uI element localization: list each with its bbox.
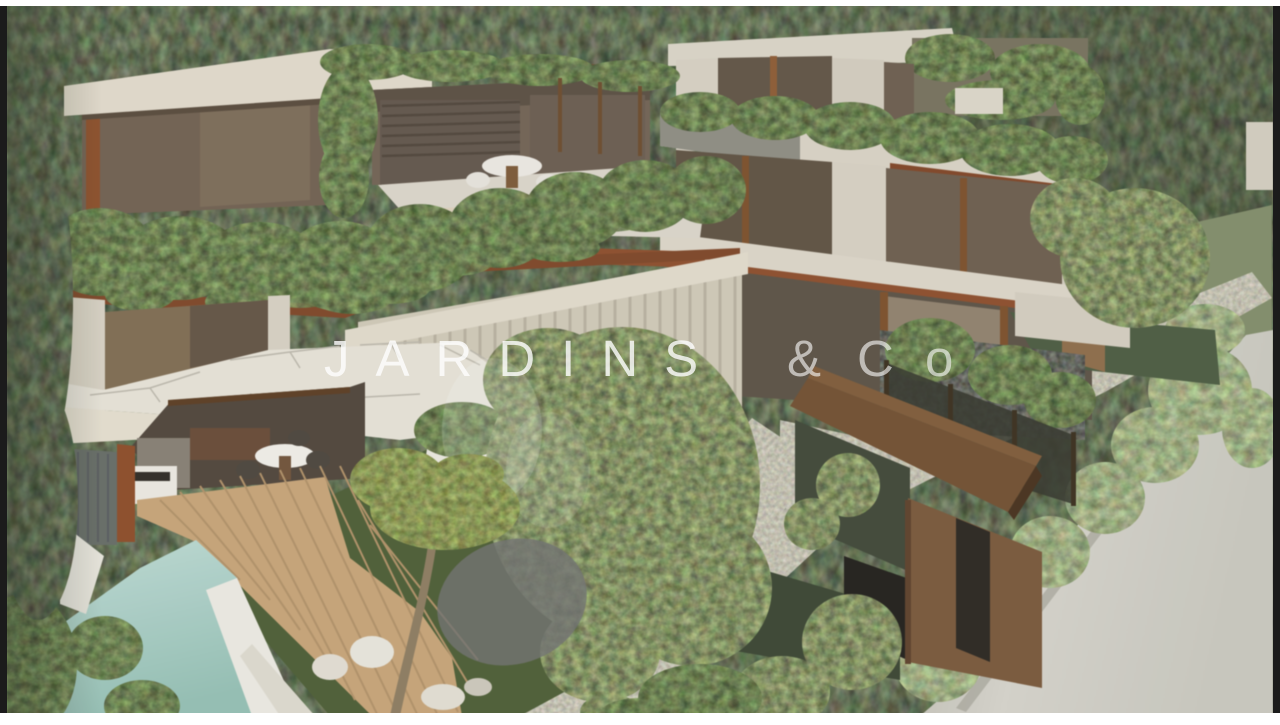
svg-text:o: o: [925, 330, 953, 387]
svg-text:C: C: [857, 330, 894, 387]
svg-text:&: &: [787, 330, 821, 387]
svg-text:JARDINS: JARDINS: [324, 330, 724, 387]
